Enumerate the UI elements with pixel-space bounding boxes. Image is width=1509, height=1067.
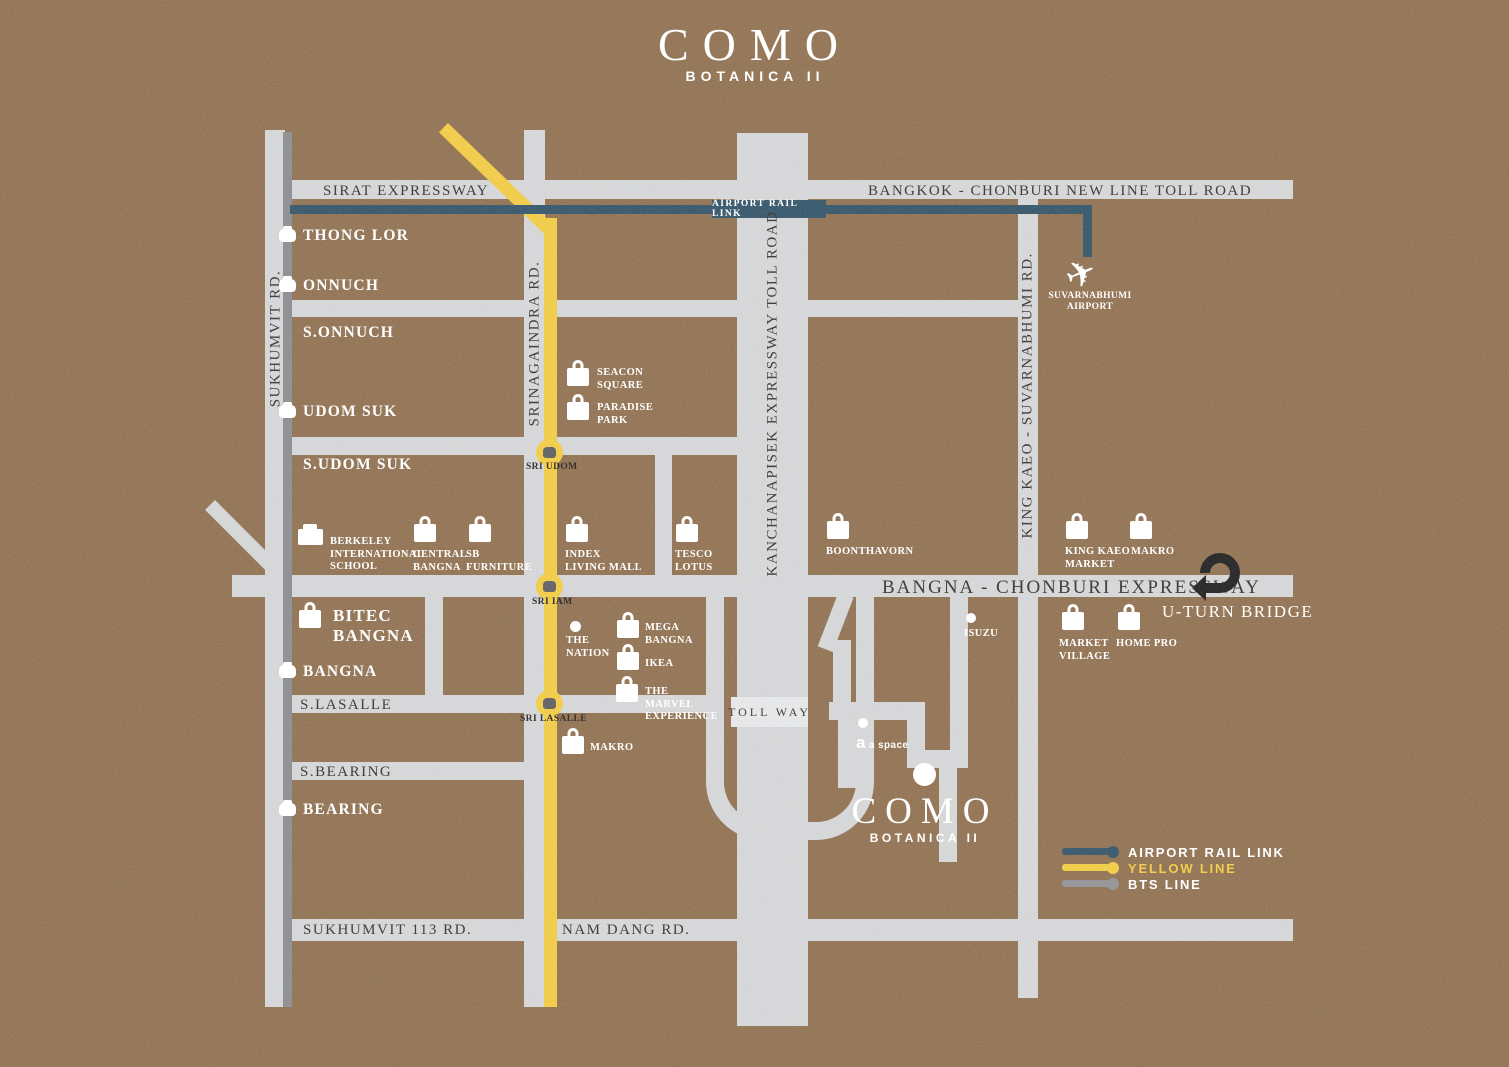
road-project-v3 (950, 597, 968, 768)
airport-rail-link-line (290, 205, 1092, 214)
project-marker-icon (913, 763, 936, 786)
bag-icon-marvel (616, 684, 638, 702)
yellow-station-icon-sri-lasalle (536, 690, 563, 717)
bts-station-onnuch: ONNUCH (303, 277, 379, 295)
landmark-suvarnabhumi-airport: SUVARNABHUMI AIRPORT (1040, 291, 1140, 314)
yellow-station-icon-sri-iam (536, 573, 563, 600)
landmark-mega-bangna: MEGA BANGNA (645, 622, 693, 647)
u-turn-bridge-label: U-TURN BRIDGE (1162, 602, 1313, 622)
road-label-king-kaeo: KING KAEO - SUVARNABHUMI RD. (1020, 259, 1037, 539)
road-horizontal-onnuch (265, 300, 1038, 317)
legend-swatch-yellow-line (1062, 864, 1110, 871)
bts-station-thong-lor: THONG LOR (303, 227, 409, 245)
landmark-market-village: MARKET VILLAGE (1059, 638, 1110, 663)
road-label-kanchanapisek: KANCHANAPISEK EXPRESSWAY TOLL ROAD (765, 247, 782, 577)
yellow-line (544, 218, 557, 1007)
legend-label-yellow-line: YELLOW LINE (1128, 861, 1237, 876)
landmark-bitec-bangna: BITEC BANGNA (333, 606, 414, 645)
bts-icon-thong-lor (279, 229, 296, 242)
bts-icon-bearing (279, 803, 296, 816)
a-space-text: a space (869, 740, 909, 751)
road-vertical-tesco (655, 443, 672, 597)
bag-icon-market-village (1062, 612, 1084, 630)
project-marker-title: COMO (775, 790, 1075, 833)
soi-label-s-onnuch: S.ONNUCH (303, 324, 394, 342)
landmark-makro-north: MAKRO (1131, 546, 1174, 559)
road-aspace-v (838, 715, 856, 788)
bts-station-bearing: BEARING (303, 801, 384, 819)
bts-station-bangna: BANGNA (303, 663, 377, 681)
bag-icon-mega-bangna (617, 620, 639, 638)
header-logo-title: COMO (555, 18, 955, 71)
bag-icon-ikea (617, 652, 639, 670)
landmark-the-nation: THE NATION (566, 635, 610, 660)
bag-icon-makro-south (562, 736, 584, 754)
bts-icon-onnuch (279, 279, 296, 292)
toll-way-label: TOLL WAY (728, 705, 811, 720)
bag-icon-bitec (299, 610, 321, 628)
u-turn-arrow-icon (1192, 546, 1244, 606)
landmark-isuzu: ISUZU (964, 628, 998, 641)
road-label-s-lasalle: S.LASALLE (300, 697, 392, 714)
landmark-makro-south: MAKRO (590, 742, 633, 755)
bag-icon-paradise (567, 402, 589, 420)
como-location-map: COMO BOTANICA II TOLL WAY AIRPORT RAIL L… (0, 0, 1509, 1067)
bag-icon-seacon (567, 368, 589, 386)
school-icon-berkeley (298, 529, 323, 545)
legend-label-airport-rail-link: AIRPORT RAIL LINK (1128, 845, 1285, 860)
bts-icon-bangna (279, 665, 296, 678)
road-label-sukhumvit113: SUKHUMVIT 113 RD. (303, 922, 472, 939)
bag-icon-tesco (676, 524, 698, 542)
landmark-boonthavorn: BOONTHAVORN (826, 546, 913, 559)
bag-icon-index (566, 524, 588, 542)
landmark-tesco-lotus: TESCO LOTUS (675, 549, 713, 574)
bts-icon-udom-suk (279, 405, 296, 418)
project-marker-subtitle: BOTANICA II (775, 831, 1075, 845)
legend-swatch-bts-line (1062, 880, 1110, 887)
a-space-logo: a (856, 733, 866, 752)
landmark-king-kaeo-market: KING KAEO MARKET (1065, 546, 1130, 571)
landmark-berkeley-school: BERKELEY INTERNATIONAL SCHOOL (330, 536, 424, 574)
bag-icon-makro-north (1130, 521, 1152, 539)
legend-swatch-airport-rail-link (1062, 848, 1110, 855)
bag-icon-boonthavorn (827, 521, 849, 539)
dot-icon-the-nation (570, 621, 581, 632)
landmark-marvel-experience: THE MARVEL EXPERIENCE (645, 686, 718, 724)
bag-icon-central-bangna (414, 524, 436, 542)
bts-station-udom-suk: UDOM SUK (303, 403, 397, 421)
road-label-sirat: SIRAT EXPRESSWAY (323, 183, 489, 200)
landmark-ikea: IKEA (645, 658, 673, 671)
road-label-bangkok-chonburi: BANGKOK - CHONBURI NEW LINE TOLL ROAD (868, 183, 1252, 200)
bag-icon-king-kaeo-market (1066, 521, 1088, 539)
toll-way-band: TOLL WAY (731, 697, 808, 727)
road-label-srinagaindra: SRINAGAINDRA RD. (527, 234, 544, 454)
bag-icon-sb-furniture (469, 524, 491, 542)
bag-icon-home-pro (1118, 612, 1140, 630)
yellow-station-sri-iam: SRI IAM (532, 597, 573, 607)
landmark-central-bangna: CENTRAL BANGNA (413, 549, 467, 574)
landmark-a-space: a a space (856, 733, 908, 753)
header-logo-subtitle: BOTANICA II (555, 68, 955, 84)
road-label-nam-dang: NAM DANG RD. (562, 922, 690, 939)
landmark-home-pro: HOME PRO (1116, 638, 1177, 651)
landmark-index-living-mall: INDEX LIVING MALL (565, 549, 642, 574)
road-vertical-bitec (425, 597, 443, 713)
road-label-s-bearing: S.BEARING (300, 764, 392, 781)
dot-icon-a-space (858, 718, 868, 728)
yellow-station-sri-udom: SRI UDOM (526, 462, 578, 472)
legend-label-bts-line: BTS LINE (1128, 877, 1202, 892)
landmark-sb-furniture: SB FURNITURE (466, 549, 532, 574)
landmark-seacon-square: SEACON SQUARE (597, 367, 643, 392)
landmark-paradise-park: PARADISE PARK (597, 402, 653, 427)
soi-label-s-udom-suk: S.UDOM SUK (303, 456, 412, 474)
dot-icon-isuzu (966, 613, 976, 623)
yellow-station-sri-lasalle: SRI LASALLE (520, 714, 587, 724)
